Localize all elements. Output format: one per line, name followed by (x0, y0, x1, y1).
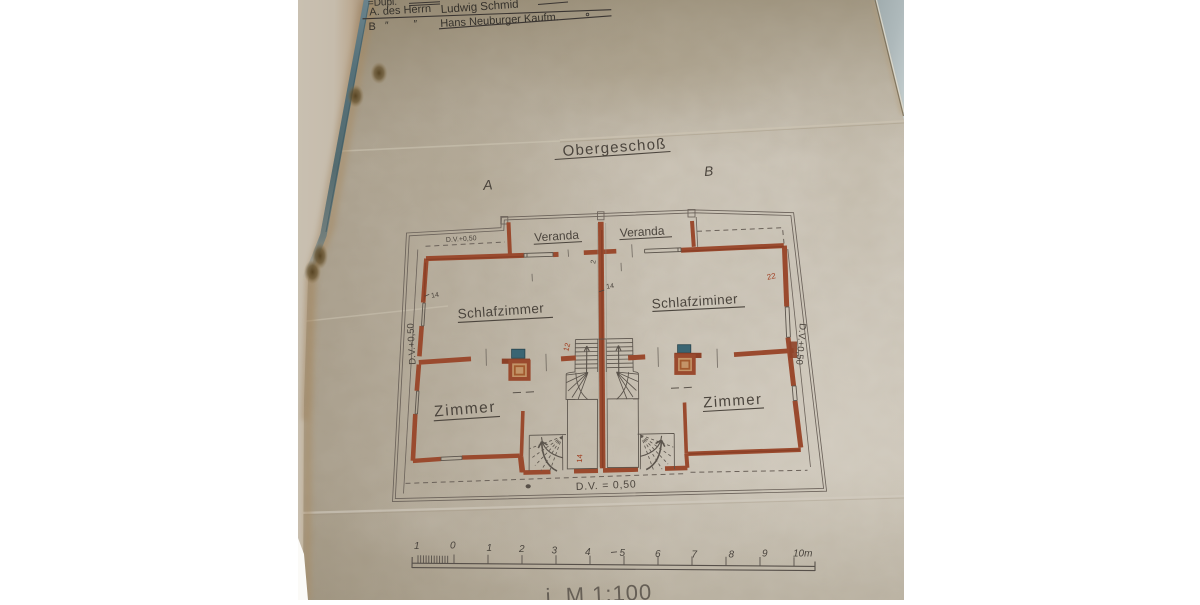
svg-text:1: 1 (414, 541, 420, 552)
svg-text:14: 14 (575, 454, 584, 463)
svg-text:10m: 10m (793, 549, 812, 560)
svg-text:14: 14 (606, 283, 615, 291)
svg-text:9: 9 (762, 549, 768, 560)
svg-text:8: 8 (729, 550, 735, 561)
svg-text:″: ″ (414, 19, 418, 30)
svg-text:1: 1 (487, 543, 493, 554)
svg-text:14: 14 (431, 292, 440, 300)
svg-text:2: 2 (518, 544, 525, 555)
svg-text:D.V.+0,50: D.V.+0,50 (405, 323, 418, 365)
svg-text:A: A (482, 176, 493, 193)
svg-text:B: B (704, 163, 714, 179)
svg-text:″: ″ (385, 21, 389, 32)
svg-text:7: 7 (692, 550, 698, 561)
svg-text:i. M 1:100: i. M 1:100 (545, 579, 653, 600)
svg-text:0: 0 (450, 541, 456, 552)
svg-text:3: 3 (552, 546, 558, 557)
svg-text:4: 4 (585, 547, 591, 558)
svg-text:6: 6 (655, 549, 661, 560)
svg-text:5: 5 (620, 548, 626, 559)
svg-text:B: B (369, 21, 376, 33)
